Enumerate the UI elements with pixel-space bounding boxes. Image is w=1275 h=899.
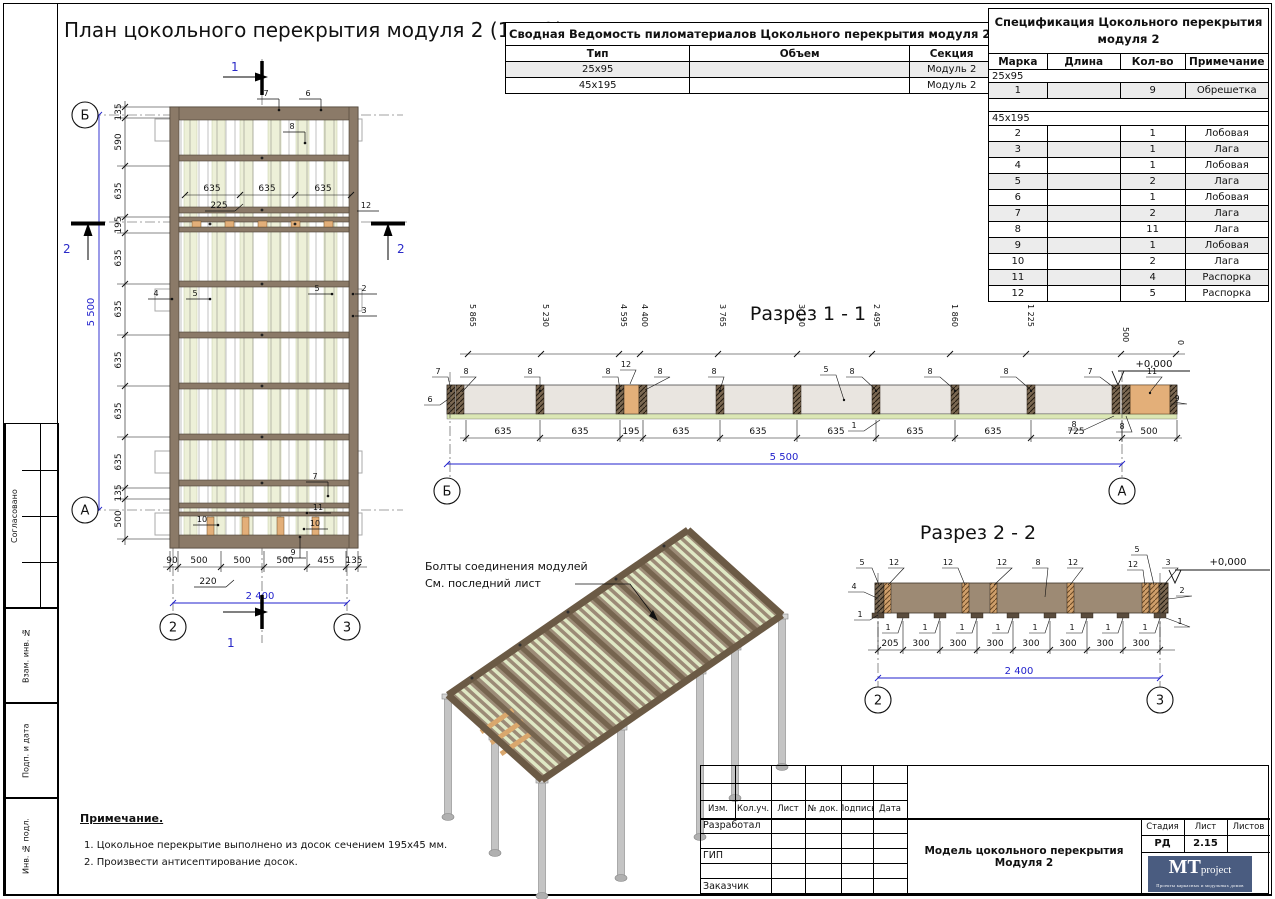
tb-col-podpis: Подпись xyxy=(841,800,873,818)
table-row: 1 9 Обрешетка xyxy=(989,83,1269,99)
section-2-2-grid-markers: 2 3 xyxy=(865,687,1173,713)
svg-text:1: 1 xyxy=(959,623,964,632)
svg-text:135: 135 xyxy=(114,103,124,120)
svg-text:+0,000: +0,000 xyxy=(1135,359,1172,370)
tb-stage-header: Стадия xyxy=(1141,818,1184,835)
svg-text:11: 11 xyxy=(313,503,323,512)
plan-bottom-dimensions: 90 500 500 500 455 135 220 2 400 xyxy=(163,551,367,606)
section-1-1-title: Разрез 1 - 1 xyxy=(750,303,866,325)
svg-text:5: 5 xyxy=(823,365,828,374)
svg-text:1: 1 xyxy=(1142,623,1147,632)
tb-sheets-header: Листов xyxy=(1227,818,1270,835)
svg-text:7: 7 xyxy=(1087,367,1092,376)
svg-text:135: 135 xyxy=(114,484,124,501)
svg-text:635: 635 xyxy=(906,427,923,437)
stamp-approved-block: Согласовано xyxy=(4,423,59,609)
svg-text:А: А xyxy=(81,504,90,519)
svg-text:3: 3 xyxy=(343,621,351,636)
svg-text:635: 635 xyxy=(114,402,124,419)
col-header-section: Секция xyxy=(909,46,993,62)
tb-col-izm: Изм. xyxy=(701,800,735,818)
tb-sheet-header: Лист xyxy=(1184,818,1227,835)
svg-text:500: 500 xyxy=(276,556,293,566)
svg-text:10: 10 xyxy=(310,519,320,528)
svg-text:1: 1 xyxy=(851,421,856,430)
svg-text:635: 635 xyxy=(258,184,275,194)
plan-frame xyxy=(170,107,358,548)
svg-text:500: 500 xyxy=(190,556,207,566)
svg-text:725: 725 xyxy=(1067,427,1084,437)
svg-text:500: 500 xyxy=(1121,327,1130,342)
drawing-sheet: План цокольного перекрытия модуля 2 (1 :… xyxy=(0,0,1275,899)
stamp-inv-block: Инв. № подл. xyxy=(4,797,59,895)
svg-text:1: 1 xyxy=(922,623,927,632)
svg-text:5: 5 xyxy=(192,289,197,298)
svg-text:300: 300 xyxy=(1059,639,1076,649)
svg-text:1: 1 xyxy=(1177,617,1182,626)
table-row: 21Лобовая xyxy=(989,126,1269,142)
tb-row-gip: ГИП xyxy=(703,848,773,863)
svg-text:2: 2 xyxy=(1179,586,1184,595)
cell-mark: 1 xyxy=(989,83,1048,99)
table-row: 114Распорка xyxy=(989,270,1269,286)
title-block: Изм. Кол.уч. Лист № док. Подпись Дата Ра… xyxy=(700,765,1269,894)
svg-text:300: 300 xyxy=(1132,639,1149,649)
svg-text:635: 635 xyxy=(827,427,844,437)
svg-text:195: 195 xyxy=(622,427,639,437)
svg-text:12: 12 xyxy=(997,558,1007,567)
svg-text:8: 8 xyxy=(849,367,854,376)
svg-text:2 495: 2 495 xyxy=(872,304,881,327)
svg-text:5 500: 5 500 xyxy=(770,452,799,463)
svg-text:8: 8 xyxy=(289,122,294,131)
svg-text:90: 90 xyxy=(166,556,178,566)
col-header-note: Примечание xyxy=(1185,54,1268,70)
svg-text:Б: Б xyxy=(443,485,452,500)
col-header-length: Длина xyxy=(1047,54,1120,70)
svg-text:635: 635 xyxy=(749,427,766,437)
svg-text:7: 7 xyxy=(263,89,268,98)
svg-text:8: 8 xyxy=(1035,558,1040,567)
svg-text:635: 635 xyxy=(314,184,331,194)
svg-text:2: 2 xyxy=(397,242,405,256)
svg-text:1: 1 xyxy=(227,636,235,650)
svg-text:2 400: 2 400 xyxy=(246,591,275,602)
section-1-1-bottom-dimensions: 635 635 195 635 635 635 635 635 725 500 … xyxy=(444,420,1182,467)
svg-text:5 500: 5 500 xyxy=(86,298,97,327)
svg-text:455: 455 xyxy=(317,556,334,566)
svg-text:1: 1 xyxy=(1105,623,1110,632)
svg-text:9: 9 xyxy=(290,548,295,557)
elevation-mark: +0,000 xyxy=(1169,557,1270,583)
svg-text:635: 635 xyxy=(114,300,124,317)
svg-text:1: 1 xyxy=(1069,623,1074,632)
svg-text:12: 12 xyxy=(361,201,371,210)
svg-text:6: 6 xyxy=(427,395,432,404)
mt-project-logo: MTproject Проекты каркасных и модульных … xyxy=(1148,856,1252,892)
svg-text:300: 300 xyxy=(1096,639,1113,649)
svg-text:8: 8 xyxy=(657,367,662,376)
svg-text:1: 1 xyxy=(885,623,890,632)
cell-volume xyxy=(690,78,910,94)
svg-text:2 400: 2 400 xyxy=(1005,666,1034,677)
note-item: 2. Произвести антисептирование досок. xyxy=(84,857,298,868)
group-label: 25х95 xyxy=(989,70,1269,83)
svg-text:635: 635 xyxy=(984,427,1001,437)
svg-text:Болты соединения модулей: Болты соединения модулей xyxy=(425,560,588,573)
svg-text:3: 3 xyxy=(1156,694,1164,709)
svg-text:1: 1 xyxy=(857,610,862,619)
svg-text:5: 5 xyxy=(1134,545,1139,554)
notes-title: Примечание. xyxy=(80,812,163,825)
svg-text:635: 635 xyxy=(203,184,220,194)
cell-note: Обрешетка xyxy=(1185,83,1268,99)
svg-text:5 865: 5 865 xyxy=(468,304,477,327)
svg-text:8: 8 xyxy=(463,367,468,376)
svg-text:9: 9 xyxy=(1174,394,1179,403)
svg-text:7: 7 xyxy=(312,472,317,481)
svg-text:635: 635 xyxy=(672,427,689,437)
svg-text:2: 2 xyxy=(874,694,882,709)
svg-text:300: 300 xyxy=(1022,639,1039,649)
svg-text:500: 500 xyxy=(1140,427,1157,437)
svg-text:1: 1 xyxy=(231,60,239,74)
svg-text:А: А xyxy=(1118,485,1127,500)
tb-row-developed: Разработал xyxy=(703,818,773,833)
document-title: Модель цокольного перекрытия Модуля 2 xyxy=(907,818,1141,895)
svg-text:12: 12 xyxy=(621,360,631,369)
tb-col-data: Дата xyxy=(873,800,907,818)
cell-section: Модуль 2 xyxy=(909,78,993,94)
col-header-mark: Марка xyxy=(989,54,1048,70)
cell-type: 25х95 xyxy=(506,62,690,78)
svg-text:300: 300 xyxy=(986,639,1003,649)
tb-sheet-value: 2.15 xyxy=(1184,835,1227,852)
svg-text:3: 3 xyxy=(361,306,366,315)
svg-text:1 225: 1 225 xyxy=(1026,304,1035,327)
tb-row-customer: Заказчик xyxy=(703,878,773,894)
svg-text:5: 5 xyxy=(859,558,864,567)
cell-section: Модуль 2 xyxy=(909,62,993,78)
spec-table-title-line1: Спецификация Цокольного перекрытия xyxy=(995,15,1263,29)
section-2-2-drawing: Разрез 2 - 2 xyxy=(830,515,1275,715)
svg-text:7: 7 xyxy=(435,367,440,376)
svg-text:12: 12 xyxy=(889,558,899,567)
svg-text:1 860: 1 860 xyxy=(950,304,959,327)
svg-text:6: 6 xyxy=(305,89,310,98)
svg-text:8: 8 xyxy=(527,367,532,376)
svg-text:12: 12 xyxy=(943,558,953,567)
svg-text:4 595: 4 595 xyxy=(619,304,628,327)
svg-text:8: 8 xyxy=(711,367,716,376)
table-row: 61Лобовая xyxy=(989,190,1269,206)
table-row: 91Лобовая xyxy=(989,238,1269,254)
cell-volume xyxy=(690,62,910,78)
lumber-summary-table: Сводная Ведомость пиломатериалов Цокольн… xyxy=(505,22,994,94)
page-title: План цокольного перекрытия модуля 2 (1 :… xyxy=(64,18,563,42)
svg-text:3 765: 3 765 xyxy=(718,304,727,327)
svg-text:635: 635 xyxy=(114,453,124,470)
tb-stage-value: РД xyxy=(1141,835,1184,852)
spec-table-title-line2: модуля 2 xyxy=(1098,32,1160,46)
svg-text:1: 1 xyxy=(1032,623,1037,632)
section-2-2-dimensions: 205 300 300 300 300 300 300 300 2 400 xyxy=(868,621,1175,681)
col-header-qty: Кол-во xyxy=(1120,54,1185,70)
svg-text:5 230: 5 230 xyxy=(541,304,550,327)
stamp-label: Взам. инв. № xyxy=(5,608,46,703)
tb-col-ndok: № док. xyxy=(805,800,841,818)
stamp-vzam-block: Взам. инв. № xyxy=(4,607,59,704)
stamp-label: Подп. и дата xyxy=(5,703,46,798)
logo-project-text: project xyxy=(1201,864,1232,876)
tb-col-list: Лист xyxy=(771,800,805,818)
plan-left-dimensions: 135 590 635 195 635 635 635 635 635 135 … xyxy=(86,101,170,545)
tb-col-koluch: Кол.уч. xyxy=(735,800,771,818)
table-row: 31Лага xyxy=(989,142,1269,158)
svg-text:635: 635 xyxy=(114,182,124,199)
svg-text:2: 2 xyxy=(63,242,71,256)
logo-mt-text: MT xyxy=(1169,856,1201,878)
table-row: 102Лага xyxy=(989,254,1269,270)
col-header-type: Тип xyxy=(506,46,690,62)
svg-text:12: 12 xyxy=(1128,560,1138,569)
svg-text:2: 2 xyxy=(169,621,177,636)
svg-text:5: 5 xyxy=(314,284,319,293)
svg-text:Б: Б xyxy=(81,109,90,124)
svg-text:10: 10 xyxy=(197,515,207,524)
cell-qty: 9 xyxy=(1120,83,1185,99)
svg-text:8: 8 xyxy=(927,367,932,376)
svg-text:590: 590 xyxy=(114,133,124,150)
specification-table: Спецификация Цокольного перекрытия модул… xyxy=(988,8,1269,302)
table-row: 41Лобовая xyxy=(989,158,1269,174)
svg-text:195: 195 xyxy=(114,216,124,233)
svg-text:12: 12 xyxy=(1068,558,1078,567)
section-1-1-drawing: Разрез 1 - 1 xyxy=(420,292,1195,522)
section-2-2-title: Разрез 2 - 2 xyxy=(920,522,1036,544)
logo-tagline: Проекты каркасных и модульных домов xyxy=(1148,883,1252,888)
svg-text:3: 3 xyxy=(1165,558,1170,567)
svg-text:1: 1 xyxy=(995,623,1000,632)
svg-text:500: 500 xyxy=(233,556,250,566)
svg-text:635: 635 xyxy=(494,427,511,437)
table-row: 811Лага xyxy=(989,222,1269,238)
svg-text:8: 8 xyxy=(1003,367,1008,376)
svg-text:225: 225 xyxy=(210,201,227,211)
table-row: 45х195 Модуль 2 xyxy=(506,78,994,94)
svg-text:4: 4 xyxy=(153,289,158,298)
svg-text:205: 205 xyxy=(881,639,898,649)
svg-text:3 130: 3 130 xyxy=(797,304,806,327)
stamp-label: Согласовано xyxy=(5,424,23,608)
floor-plan-drawing: 135 590 635 195 635 635 635 635 635 135 … xyxy=(55,55,415,680)
lumber-table-title: Сводная Ведомость пиломатериалов Цокольн… xyxy=(506,23,994,46)
svg-text:8: 8 xyxy=(605,367,610,376)
svg-text:4 400: 4 400 xyxy=(640,304,649,327)
table-row: 52Лага xyxy=(989,174,1269,190)
svg-text:4: 4 xyxy=(851,582,856,591)
svg-text:635: 635 xyxy=(114,351,124,368)
stamp-podp-block: Подп. и дата xyxy=(4,702,59,799)
svg-text:См. последний лист: См. последний лист xyxy=(425,577,542,590)
svg-text:500: 500 xyxy=(114,510,124,527)
svg-text:220: 220 xyxy=(199,577,216,587)
svg-text:635: 635 xyxy=(114,249,124,266)
col-header-volume: Объем xyxy=(690,46,910,62)
svg-text:300: 300 xyxy=(912,639,929,649)
stamp-label: Инв. № подл. xyxy=(5,798,46,894)
table-row: 25х95 Модуль 2 xyxy=(506,62,994,78)
cell-type: 45х195 xyxy=(506,78,690,94)
cell-length xyxy=(1047,83,1120,99)
note-item: 1. Цокольное перекрытие выполнено из дос… xyxy=(84,840,447,851)
svg-text:2: 2 xyxy=(361,284,366,293)
group-label: 45х195 xyxy=(989,112,1269,126)
svg-text:0: 0 xyxy=(1176,340,1185,345)
svg-text:635: 635 xyxy=(571,427,588,437)
svg-text:+0,000: +0,000 xyxy=(1209,557,1246,568)
svg-text:135: 135 xyxy=(345,556,362,566)
table-row: 72Лага xyxy=(989,206,1269,222)
svg-text:300: 300 xyxy=(949,639,966,649)
